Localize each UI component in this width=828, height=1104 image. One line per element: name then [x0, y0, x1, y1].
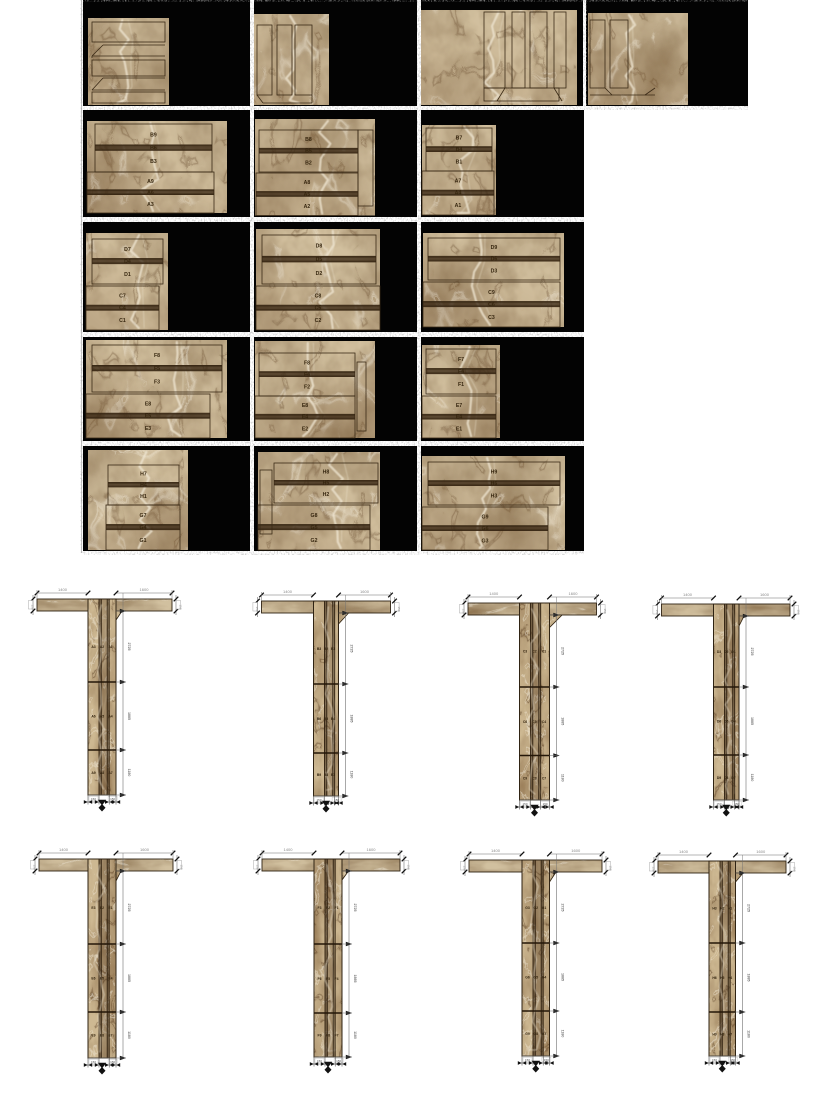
svg-text:H9: H9 [712, 1033, 716, 1037]
svg-text:150: 150 [655, 609, 659, 614]
svg-text:E2: E2 [100, 906, 104, 910]
svg-text:G9: G9 [482, 514, 489, 520]
svg-text:G2: G2 [533, 906, 538, 910]
svg-text:D1: D1 [731, 650, 735, 654]
svg-text:D8: D8 [724, 776, 728, 780]
svg-text:1885: 1885 [127, 974, 131, 982]
svg-text:F8: F8 [326, 1034, 330, 1038]
svg-text:E1: E1 [456, 427, 462, 433]
svg-text:G7: G7 [140, 513, 147, 519]
svg-text:2725: 2725 [350, 645, 354, 653]
svg-text:C8: C8 [315, 294, 322, 300]
svg-text:150: 150 [179, 604, 183, 609]
svg-text:150: 150 [463, 865, 467, 870]
svg-text:1885: 1885 [127, 712, 131, 720]
svg-text:1885: 1885 [750, 717, 754, 725]
svg-text:F9: F9 [318, 1034, 322, 1038]
svg-text:H4: H4 [728, 976, 732, 980]
svg-text:G4: G4 [542, 976, 547, 980]
svg-text:1400: 1400 [284, 847, 294, 852]
svg-text:1180: 1180 [350, 771, 354, 779]
svg-text:A3: A3 [147, 202, 154, 208]
svg-text:G9: G9 [525, 1032, 530, 1036]
svg-text:H1: H1 [140, 494, 147, 500]
svg-text:A2: A2 [304, 204, 311, 210]
svg-text:1180: 1180 [561, 774, 565, 782]
svg-text:C2: C2 [315, 318, 322, 324]
svg-text:D7: D7 [124, 247, 131, 253]
svg-text:H8: H8 [720, 1033, 724, 1037]
svg-text:E4: E4 [456, 415, 462, 421]
svg-text:150: 150 [522, 802, 527, 806]
svg-text:C4: C4 [119, 306, 126, 312]
svg-text:G5: G5 [533, 976, 538, 980]
svg-text:B1: B1 [331, 647, 335, 651]
svg-text:C6: C6 [523, 720, 527, 724]
svg-text:150: 150 [31, 604, 35, 609]
svg-text:C3: C3 [488, 315, 495, 321]
svg-text:E1: E1 [108, 906, 112, 910]
svg-text:B8: B8 [305, 137, 312, 143]
svg-text:H7: H7 [728, 1033, 732, 1037]
svg-text:F2: F2 [326, 906, 330, 910]
svg-text:E8: E8 [302, 403, 308, 409]
svg-text:1400: 1400 [683, 592, 693, 597]
svg-text:C1: C1 [542, 650, 546, 654]
svg-text:F1: F1 [458, 382, 464, 388]
svg-text:D4: D4 [124, 259, 131, 265]
svg-text:F4: F4 [458, 369, 464, 375]
svg-text:A9: A9 [147, 179, 154, 185]
svg-text:C6: C6 [488, 302, 495, 308]
svg-text:C5: C5 [532, 720, 536, 724]
svg-text:150: 150 [407, 864, 411, 869]
svg-text:150: 150 [797, 609, 801, 614]
svg-text:F8: F8 [304, 360, 310, 366]
svg-text:1400: 1400 [283, 589, 293, 594]
svg-text:150: 150 [544, 1058, 549, 1062]
svg-text:150: 150 [110, 1060, 115, 1064]
svg-text:F4: F4 [335, 977, 339, 981]
svg-text:D3: D3 [491, 269, 498, 275]
svg-text:G3: G3 [525, 906, 530, 910]
svg-text:1885: 1885 [350, 715, 354, 723]
svg-text:150: 150 [256, 864, 260, 869]
svg-text:1600: 1600 [140, 847, 150, 852]
svg-text:B3: B3 [150, 159, 157, 165]
svg-text:B7: B7 [456, 135, 463, 141]
svg-text:H7: H7 [140, 472, 147, 478]
svg-text:150: 150 [652, 866, 656, 871]
svg-text:B6: B6 [150, 146, 157, 152]
svg-text:G7: G7 [542, 1032, 547, 1036]
svg-text:A6: A6 [147, 190, 154, 196]
svg-text:A4: A4 [455, 191, 462, 197]
svg-text:F6: F6 [318, 977, 322, 981]
svg-text:A9: A9 [91, 771, 95, 775]
svg-text:G2: G2 [311, 538, 318, 544]
svg-text:E5: E5 [145, 414, 151, 420]
svg-text:H6: H6 [712, 976, 716, 980]
svg-text:1885: 1885 [747, 974, 751, 982]
svg-text:H2: H2 [720, 907, 724, 911]
svg-text:H1: H1 [728, 907, 732, 911]
svg-text:B5: B5 [324, 717, 328, 721]
svg-text:150: 150 [716, 802, 721, 806]
svg-text:A7: A7 [108, 771, 112, 775]
svg-text:C1: C1 [119, 318, 126, 324]
svg-text:1180: 1180 [127, 1031, 131, 1039]
svg-text:C7: C7 [542, 776, 546, 780]
svg-text:E6: E6 [91, 977, 95, 981]
svg-text:F4: F4 [304, 372, 310, 378]
svg-text:150: 150 [91, 797, 96, 801]
svg-text:B2: B2 [324, 647, 328, 651]
svg-text:2725: 2725 [750, 648, 754, 656]
svg-text:E8: E8 [145, 402, 151, 408]
svg-text:1400: 1400 [59, 847, 69, 852]
svg-text:150: 150 [609, 865, 613, 870]
svg-text:1400: 1400 [679, 849, 689, 854]
svg-text:2725: 2725 [561, 904, 565, 912]
svg-text:1180: 1180 [353, 1031, 357, 1039]
svg-text:F8: F8 [154, 353, 160, 359]
svg-text:F3: F3 [154, 379, 160, 385]
svg-text:G6: G6 [482, 526, 489, 532]
svg-text:F2: F2 [304, 384, 310, 390]
svg-text:B9: B9 [317, 773, 321, 777]
svg-text:E8: E8 [100, 1034, 104, 1038]
svg-text:D5: D5 [724, 720, 728, 724]
svg-text:2725: 2725 [747, 904, 751, 912]
svg-text:150: 150 [462, 608, 466, 613]
svg-text:150: 150 [525, 1058, 530, 1062]
svg-text:150: 150 [33, 864, 37, 869]
svg-text:D4: D4 [731, 720, 735, 724]
svg-text:2725: 2725 [127, 643, 131, 651]
svg-text:G5: G5 [311, 525, 318, 531]
svg-text:G6: G6 [525, 976, 530, 980]
svg-text:150: 150 [180, 864, 184, 869]
svg-text:H2: H2 [323, 492, 330, 498]
svg-text:150: 150 [91, 1060, 96, 1064]
svg-text:A1: A1 [455, 203, 462, 209]
svg-text:D9: D9 [491, 245, 498, 251]
svg-text:1180: 1180 [750, 774, 754, 782]
svg-text:C9: C9 [488, 290, 495, 296]
svg-text:B9: B9 [150, 132, 157, 138]
svg-text:A6: A6 [91, 715, 95, 719]
svg-text:C5: C5 [315, 306, 322, 312]
svg-text:E5: E5 [100, 977, 104, 981]
svg-text:F3: F3 [318, 906, 322, 910]
svg-text:A5: A5 [100, 715, 104, 719]
svg-text:1600: 1600 [756, 849, 766, 854]
svg-text:D2: D2 [316, 271, 323, 277]
svg-text:E4: E4 [302, 415, 308, 421]
svg-text:B8: B8 [324, 773, 328, 777]
svg-text:A4: A4 [108, 715, 112, 719]
svg-text:B4: B4 [456, 147, 463, 153]
svg-text:D6: D6 [491, 257, 498, 263]
svg-text:1600: 1600 [360, 589, 370, 594]
svg-text:150: 150 [316, 798, 321, 802]
svg-text:A7: A7 [455, 179, 462, 185]
svg-text:F5: F5 [326, 977, 330, 981]
svg-text:150: 150 [255, 606, 259, 611]
svg-text:150: 150 [397, 606, 401, 611]
svg-text:B2: B2 [305, 161, 312, 167]
svg-text:D5: D5 [316, 257, 323, 263]
svg-text:1180: 1180 [561, 1030, 565, 1038]
svg-text:E3: E3 [91, 906, 95, 910]
svg-text:C8: C8 [532, 776, 536, 780]
svg-text:B7: B7 [331, 773, 335, 777]
svg-text:150: 150 [712, 1058, 717, 1062]
svg-text:A1: A1 [108, 645, 112, 649]
svg-text:E7: E7 [108, 1034, 112, 1038]
svg-text:1600: 1600 [571, 848, 581, 853]
svg-text:H4: H4 [140, 483, 147, 489]
svg-text:E3: E3 [145, 426, 151, 432]
svg-text:F5: F5 [154, 366, 160, 372]
svg-text:H3: H3 [712, 907, 716, 911]
svg-text:C7: C7 [119, 294, 126, 300]
svg-text:B1: B1 [456, 159, 463, 165]
svg-text:1400: 1400 [489, 591, 499, 596]
svg-text:150: 150 [543, 802, 548, 806]
svg-text:G8: G8 [533, 1032, 538, 1036]
svg-text:1400: 1400 [491, 848, 501, 853]
svg-text:A5: A5 [304, 192, 311, 198]
svg-text:F7: F7 [458, 357, 464, 363]
svg-text:A2: A2 [100, 645, 104, 649]
svg-text:1600: 1600 [367, 847, 377, 852]
svg-text:A8: A8 [304, 180, 311, 186]
svg-text:150: 150 [793, 866, 797, 871]
svg-text:H5: H5 [720, 976, 724, 980]
svg-text:H3: H3 [491, 493, 498, 499]
svg-text:E7: E7 [456, 403, 462, 409]
svg-text:G3: G3 [482, 538, 489, 544]
svg-text:H6: H6 [491, 481, 498, 487]
svg-text:H8: H8 [323, 470, 330, 476]
svg-text:H9: H9 [491, 469, 498, 475]
svg-text:B6: B6 [317, 717, 321, 721]
svg-text:D8: D8 [316, 244, 323, 250]
svg-text:G1: G1 [140, 538, 147, 544]
svg-text:D6: D6 [717, 720, 721, 724]
svg-text:G1: G1 [542, 906, 547, 910]
svg-text:1885: 1885 [561, 717, 565, 725]
svg-text:E2: E2 [302, 427, 308, 433]
svg-text:2725: 2725 [353, 904, 357, 912]
svg-text:150: 150 [110, 797, 115, 801]
svg-text:1600: 1600 [569, 591, 579, 596]
svg-text:E9: E9 [91, 1034, 95, 1038]
svg-text:B5: B5 [305, 149, 312, 155]
svg-text:2725: 2725 [127, 904, 131, 912]
svg-text:D1: D1 [124, 272, 131, 278]
svg-text:G4: G4 [140, 525, 147, 531]
svg-text:G8: G8 [311, 513, 318, 519]
svg-text:F1: F1 [335, 906, 339, 910]
svg-text:C9: C9 [523, 776, 527, 780]
svg-text:C4: C4 [542, 720, 546, 724]
svg-text:D3: D3 [717, 650, 721, 654]
svg-text:A3: A3 [91, 645, 95, 649]
svg-text:1885: 1885 [561, 973, 565, 981]
svg-text:1600: 1600 [140, 587, 150, 592]
svg-text:2725: 2725 [561, 647, 565, 655]
svg-text:1180: 1180 [747, 1030, 751, 1038]
svg-text:F7: F7 [335, 1034, 339, 1038]
svg-text:H5: H5 [323, 481, 330, 487]
svg-text:1180: 1180 [127, 769, 131, 777]
svg-text:D7: D7 [731, 776, 735, 780]
svg-text:150: 150 [317, 1059, 322, 1063]
svg-text:150: 150 [730, 1058, 735, 1062]
svg-text:150: 150 [336, 1059, 341, 1063]
svg-text:150: 150 [603, 608, 607, 613]
svg-text:B4: B4 [331, 717, 335, 721]
svg-text:E4: E4 [108, 977, 112, 981]
svg-text:C3: C3 [523, 650, 527, 654]
svg-text:B3: B3 [317, 647, 321, 651]
svg-text:1400: 1400 [58, 587, 68, 592]
svg-text:C2: C2 [532, 650, 536, 654]
svg-text:D2: D2 [724, 650, 728, 654]
svg-text:1600: 1600 [760, 592, 770, 597]
svg-text:1885: 1885 [353, 975, 357, 983]
svg-text:D9: D9 [717, 776, 721, 780]
svg-text:A8: A8 [100, 771, 104, 775]
